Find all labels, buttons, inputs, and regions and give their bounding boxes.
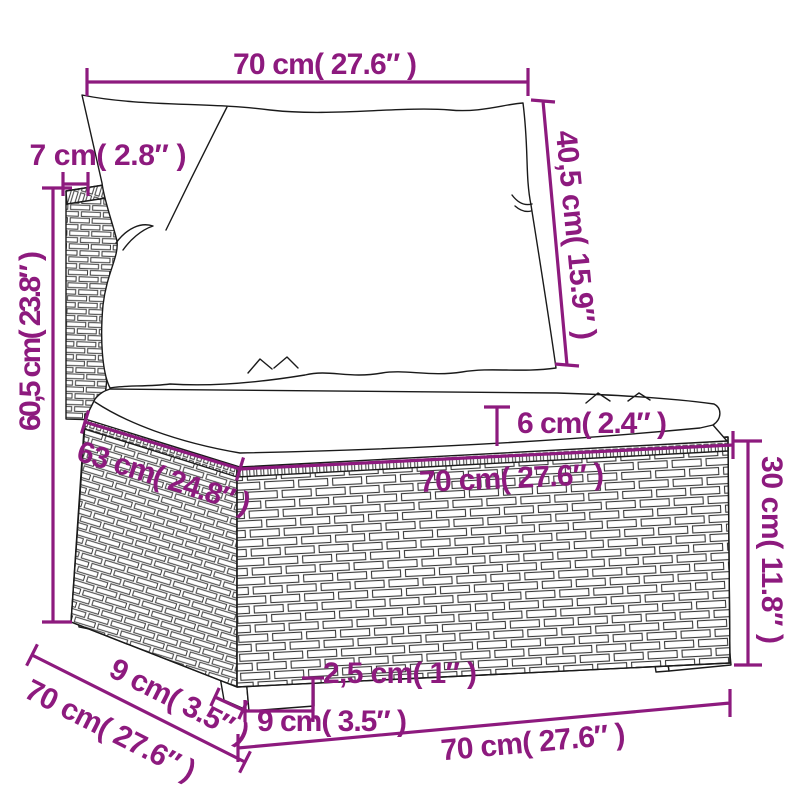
label-back-cushion-height: 40,5 cm( 15.9″ ) <box>549 129 602 341</box>
label-total-height: 60,5 cm( 23.8″ ) <box>14 251 47 431</box>
label-base-height: 30 cm( 11.8″ ) <box>755 456 788 644</box>
label-leg-height: 2,5 cm( 1″ ) <box>323 657 477 690</box>
sofa-diagram-svg: 70 cm( 27.6″ ) 7 cm( 2.8″ ) 60,5 cm( 23.… <box>0 0 800 800</box>
label-cushion-thickness: 6 cm( 2.4″ ) <box>517 407 667 440</box>
sofa-drawing <box>66 95 731 711</box>
label-back-width: 70 cm( 27.6″ ) <box>233 48 417 81</box>
label-overall-width: 70 cm( 27.6″ ) <box>440 718 627 768</box>
label-frame-top-width: 7 cm( 2.8″ ) <box>30 139 187 172</box>
label-leg-width: 9 cm( 3.5″ ) <box>257 705 407 738</box>
product-dimension-diagram: 70 cm( 27.6″ ) 7 cm( 2.8″ ) 60,5 cm( 23.… <box>0 0 800 800</box>
